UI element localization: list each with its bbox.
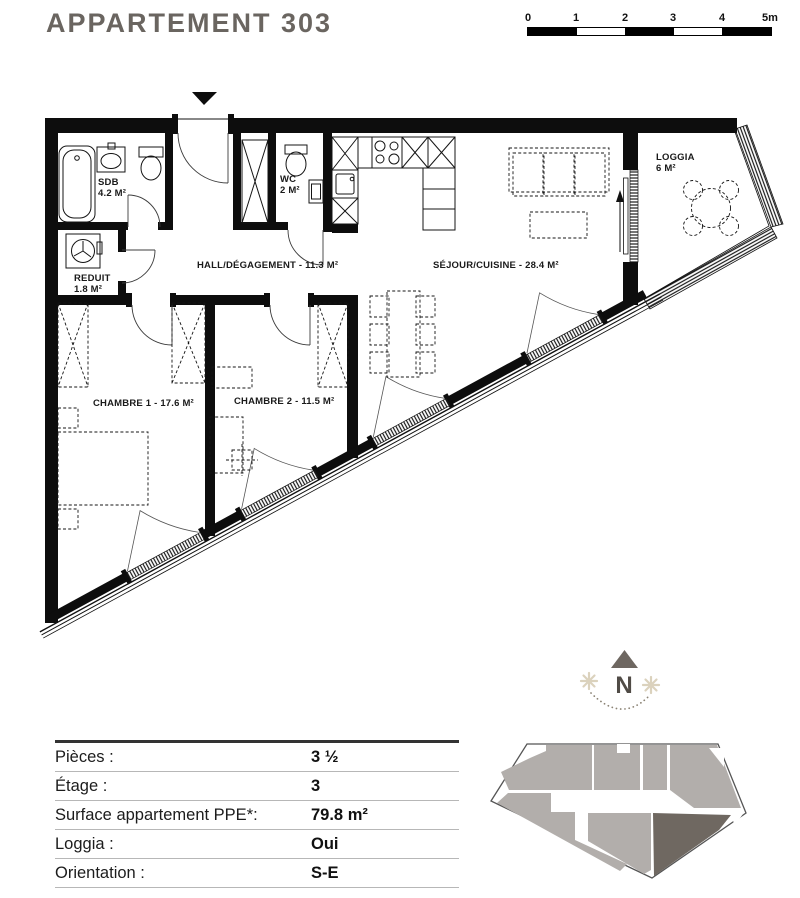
sofa-icon [509,148,609,196]
row-value: 79.8 m² [311,806,368,825]
room-label-sejour: SÉJOUR/CUISINE - 28.4 M² [433,260,559,271]
row-value: S-E [311,864,339,883]
apartment-plan: SDB 4.2 M² WC 2 M² REDUIT 1.8 M² HALL/DÉ… [12,92,783,638]
room-area-reduit: 1.8 M² [74,284,102,295]
apartment-details-table: Pièces : 3 ½ Étage : 3 Surface apparteme… [55,740,459,888]
table-row: Orientation : S-E [55,859,459,888]
row-label: Surface appartement PPE*: [55,806,311,825]
room-label-loggia: LOGGIA [656,152,695,163]
kitchen-block [332,137,455,230]
table-row: Pièces : 3 ½ [55,743,459,772]
highlighted-unit [653,813,731,876]
dining-table-icon [370,291,435,377]
room-area-loggia: 6 M² [656,163,676,174]
room-label-wc: WC [280,174,296,185]
washing-machine-icon [66,234,102,268]
door-swings [122,133,323,345]
row-value: 3 [311,777,320,796]
table-row: Étage : 3 [55,772,459,801]
slide-direction-arrow-icon [616,190,624,202]
row-label: Pièces : [55,748,311,767]
loggia-table-icon [684,181,739,236]
bedroom2-furniture [210,367,258,476]
row-label: Loggia : [55,835,311,854]
row-value: Oui [311,835,339,854]
room-label-chambre1: CHAMBRE 1 - 17.6 M² [93,398,194,409]
row-value: 3 ½ [311,748,339,767]
floor-plan-page: APPARTEMENT 303 0 1 2 3 4 5m [0,0,800,898]
north-compass: N [581,650,659,709]
key-plan [491,744,746,878]
table-row: Loggia : Oui [55,830,459,859]
room-label-chambre2: CHAMBRE 2 - 11.5 M² [234,396,334,407]
entrance-arrow-icon [192,92,217,105]
room-label-reduit: REDUIT [74,273,111,284]
room-area-wc: 2 M² [280,185,300,196]
row-label: Étage : [55,777,311,796]
toilet-icon [285,145,307,154]
bathtub-icon [59,146,95,222]
north-arrow-icon [611,650,638,668]
room-label-hall: HALL/DÉGAGEMENT - 11.3 M² [197,260,338,271]
row-label: Orientation : [55,864,311,883]
north-letter: N [615,672,632,699]
loggia-sliding-door [616,170,638,262]
coffee-table-icon [530,212,587,238]
bed-icon [58,408,148,529]
entrance-opening [178,117,228,134]
room-area-sdb: 4.2 M² [98,188,126,199]
table-row: Surface appartement PPE*: 79.8 m² [55,801,459,830]
room-label-sdb: SDB [98,177,119,188]
stove-icon [372,137,402,168]
